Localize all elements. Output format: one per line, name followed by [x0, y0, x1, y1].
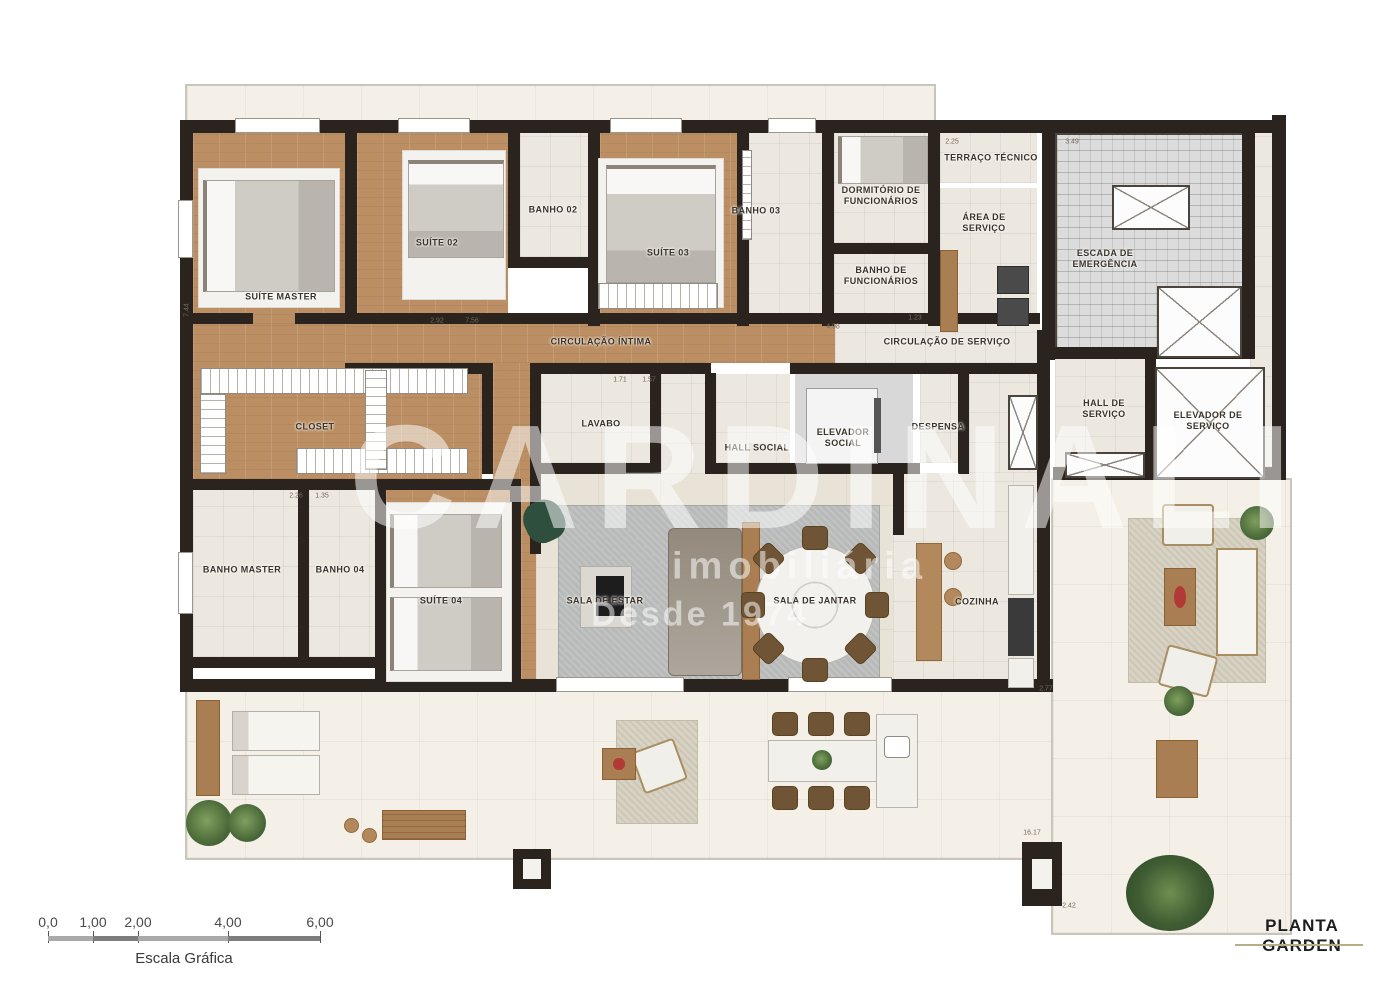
furniture-chair [808, 712, 834, 736]
room-pass-wood [493, 363, 530, 479]
shaft-box [1065, 452, 1145, 478]
furniture-lounger [232, 711, 320, 751]
furniture-chair [802, 526, 828, 550]
window [178, 200, 193, 258]
furniture-counter [1008, 658, 1034, 688]
title-underline [1235, 944, 1363, 946]
furniture-bed-ht [408, 160, 504, 258]
furniture-stove [1008, 598, 1034, 656]
wall [295, 313, 350, 324]
floor-plan-canvas: SUÍTE MASTERSUÍTE 02BANHO 02SUÍTE 03BANH… [0, 0, 1400, 989]
shaft-box [1112, 185, 1190, 230]
furniture-side-table [1164, 568, 1196, 626]
furniture-plant [812, 750, 832, 770]
wall [530, 463, 661, 474]
wall [928, 120, 940, 326]
furniture-elev-door [874, 398, 881, 453]
furniture-appliance [997, 266, 1029, 294]
window [610, 118, 682, 133]
window [235, 118, 320, 133]
wall [650, 363, 661, 474]
furniture-cabinet [196, 700, 220, 796]
room-circ-servico [835, 324, 1040, 363]
furniture-bed-hl [838, 136, 928, 184]
furniture-wardrobe-h [200, 368, 468, 394]
furniture-stool [944, 552, 962, 570]
wall [893, 473, 904, 535]
furniture-wardrobe-h [598, 283, 718, 309]
scale-segment [228, 936, 320, 941]
furniture-chair [808, 786, 834, 810]
wall [822, 120, 834, 326]
room-despensa [920, 374, 958, 463]
furniture-tv [596, 576, 624, 616]
room-hall-social [716, 374, 790, 463]
furniture-plant [228, 804, 266, 842]
wall [508, 120, 520, 268]
wall [705, 373, 716, 473]
furniture-sofa-out [1216, 548, 1258, 656]
furniture-chair [844, 786, 870, 810]
furniture-stool [362, 828, 377, 843]
plan-title: PLANTA GARDEN [1232, 916, 1372, 956]
wall [298, 490, 309, 662]
room-lavabo [541, 374, 650, 463]
furniture-chair [802, 658, 828, 682]
scale-tick-label: 4,00 [214, 914, 241, 930]
room-banho-master [193, 490, 298, 657]
furniture-sink [884, 736, 910, 758]
wall [1042, 120, 1055, 360]
shaft-box [1155, 367, 1265, 479]
room-circ-intima [345, 324, 835, 363]
window [178, 552, 193, 614]
scale-tick-label: 1,00 [79, 914, 106, 930]
furniture-stool [944, 588, 962, 606]
furniture-bed-hl [203, 180, 335, 292]
furniture-appliance [997, 298, 1029, 326]
scale-tick-label: 2,00 [124, 914, 151, 930]
room-banho-03 [749, 128, 822, 324]
wall [536, 363, 711, 374]
furniture-plant [1240, 506, 1274, 540]
wall [193, 479, 521, 490]
wall [530, 363, 541, 474]
furniture-armchair [1162, 504, 1214, 546]
wall [193, 657, 383, 668]
furniture-plant [1164, 686, 1194, 716]
wall [345, 120, 357, 320]
room-pre-hall [661, 374, 705, 474]
wall [345, 313, 1040, 324]
floor-plan: SUÍTE MASTERSUÍTE 02BANHO 02SUÍTE 03BANH… [0, 0, 1400, 989]
furniture-counter [1008, 485, 1034, 595]
wall [482, 363, 493, 474]
furniture-plant [186, 800, 232, 846]
room-terraco-tecnico [940, 133, 1037, 183]
room-hall-servico [1055, 359, 1145, 467]
wall [958, 373, 969, 474]
scale-segment [138, 936, 228, 941]
wall [193, 313, 253, 324]
furniture-wardrobe-v [200, 394, 226, 474]
scale-tick-label: 6,00 [306, 914, 333, 930]
window [768, 118, 816, 133]
wall [1272, 115, 1286, 480]
shaft-box [1008, 395, 1038, 470]
furniture-chair [772, 712, 798, 736]
window [556, 677, 684, 692]
furniture-lounger [232, 755, 320, 795]
furniture-island [916, 543, 942, 661]
furniture-bed-hl [390, 597, 502, 671]
furniture-sofa [668, 528, 742, 676]
scale-tick-mark [320, 931, 321, 943]
furniture-chair [741, 592, 765, 618]
furniture-cabinet [940, 250, 958, 332]
scale-tick-label: 0,0 [38, 914, 57, 930]
wall [705, 463, 800, 474]
furniture-stool [344, 818, 359, 833]
wall [508, 257, 600, 268]
wall [1242, 133, 1255, 359]
furniture-chair [865, 592, 889, 618]
column [1022, 842, 1062, 906]
furniture-elev-car [806, 388, 878, 464]
wall [790, 363, 1040, 374]
scale-segment [48, 936, 93, 941]
column [513, 849, 551, 889]
room-banho-04 [309, 490, 375, 657]
furniture-bed-hl [390, 514, 502, 588]
window [398, 118, 470, 133]
wall [1037, 330, 1050, 692]
furniture-bench [382, 810, 466, 840]
furniture-wardrobe-v [742, 150, 752, 240]
furniture-tree [1126, 855, 1214, 931]
furniture-chair [772, 786, 798, 810]
furniture-bed-ht [606, 165, 716, 283]
furniture-chair [844, 712, 870, 736]
room-banho-02 [520, 133, 588, 257]
furniture-counter [876, 714, 918, 808]
wall [830, 243, 930, 254]
furniture-side-table [602, 748, 636, 780]
shaft-box [1157, 286, 1242, 358]
furniture-cabinet [1156, 740, 1198, 798]
scale-segment [93, 936, 138, 941]
furniture-wardrobe-v [365, 370, 387, 470]
scale-bar-label: Escala Gráfica [135, 950, 233, 967]
